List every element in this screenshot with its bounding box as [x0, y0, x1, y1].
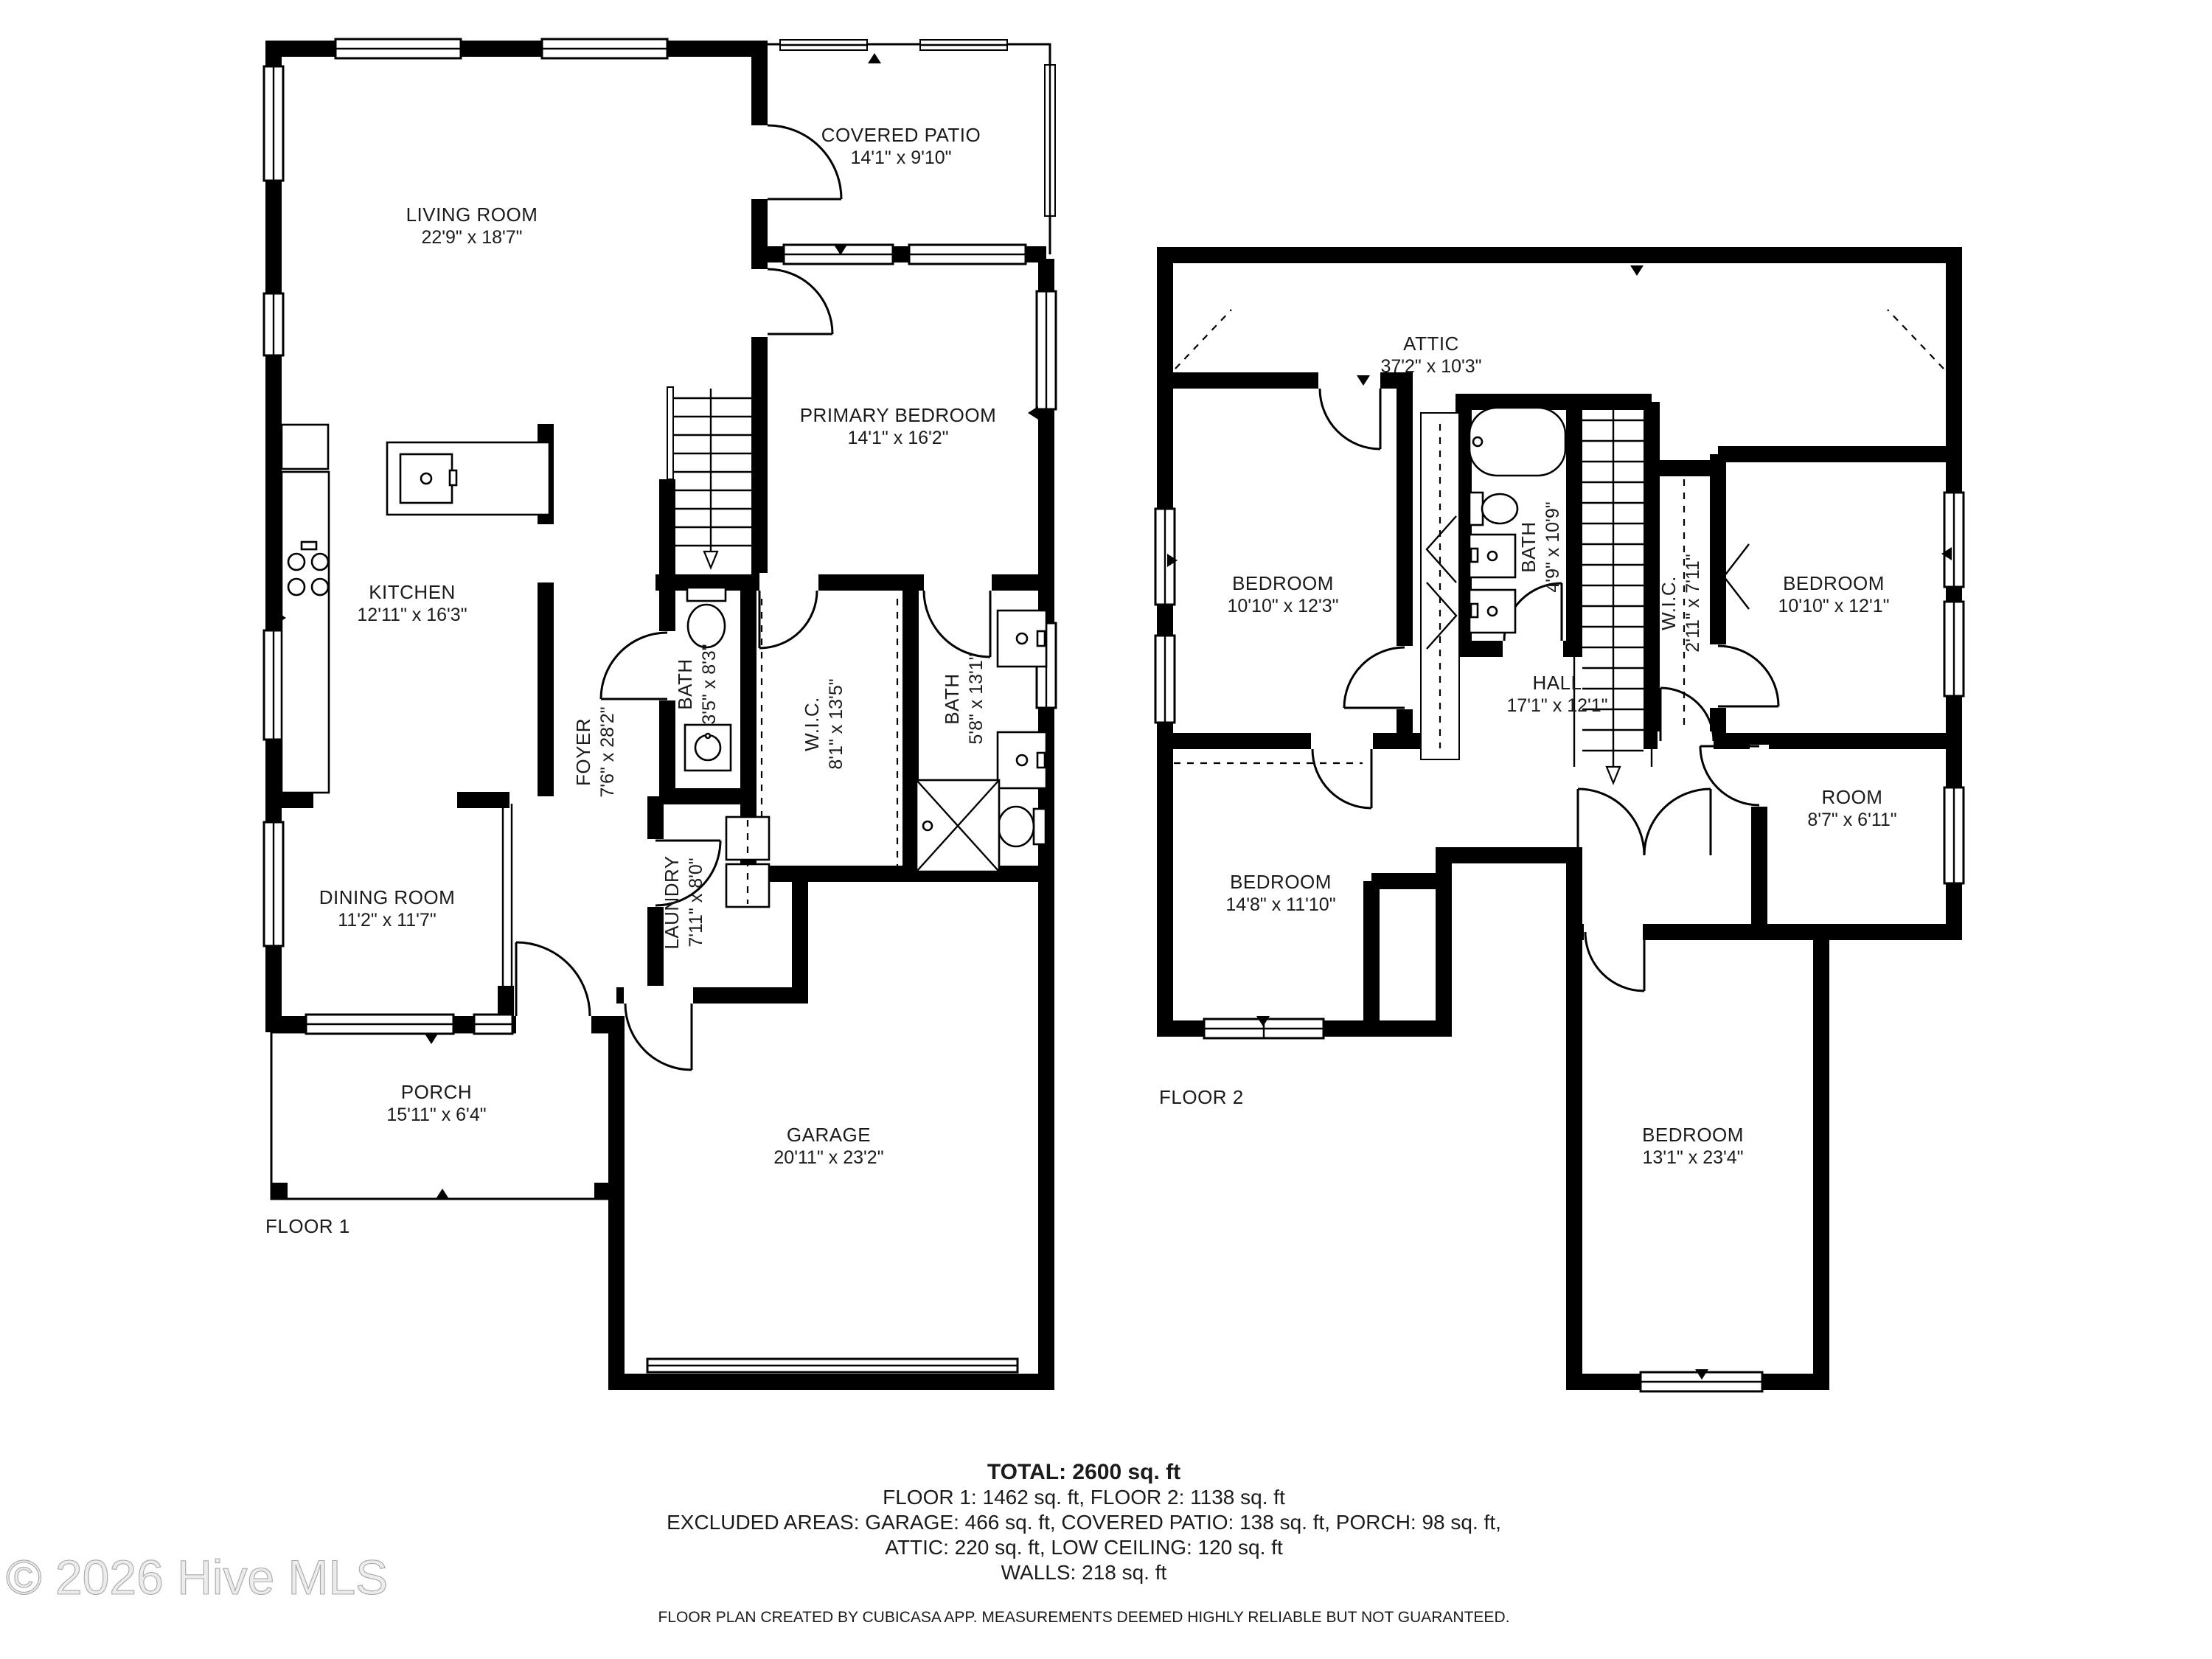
room-label-primary: PRIMARY BEDROOM [800, 404, 997, 426]
window [474, 1015, 512, 1034]
room-label-wic1: W.I.C. [801, 697, 823, 751]
stairs-down-arrow [1607, 767, 1620, 783]
floor1-labels: LIVING ROOM 22'9" x 18'7" COVERED PATIO … [265, 124, 996, 1237]
room-dims-hall: 17'1" x 12'1" [1506, 695, 1607, 716]
window [909, 245, 1026, 264]
laundry-appliances [726, 817, 769, 907]
front-door-swing [516, 942, 590, 1016]
room-label-wic2: W.I.C. [1658, 576, 1680, 630]
summary-excluded1: EXCLUDED AREAS: GARAGE: 466 sq. ft, COVE… [667, 1511, 1501, 1534]
toilet-tank [687, 588, 726, 601]
window [1944, 493, 1964, 587]
vanity-sink-icon [1470, 590, 1515, 633]
attic-door-swing [1320, 389, 1380, 449]
dining-cased-opening [503, 804, 512, 986]
floor2-windows [1155, 493, 1964, 1391]
room-dims-bath-f2: 4'9" x 10'9" [1543, 501, 1563, 592]
window [264, 66, 283, 181]
floor2-title: FLOOR 2 [1159, 1086, 1244, 1108]
room-label-garage: GARAGE [787, 1124, 871, 1146]
room-dims-primary: 14'1" x 16'2" [847, 428, 948, 448]
vanity-sink-icon [998, 732, 1046, 788]
window [1037, 291, 1056, 409]
room-label-patio: COVERED PATIO [821, 124, 981, 146]
bath2-door-swing [924, 591, 990, 657]
room-label-laundry: LAUNDRY [661, 855, 683, 949]
room-label-bedroom-mid: BEDROOM [1230, 871, 1332, 893]
summary-total: TOTAL: 2600 sq. ft [987, 1460, 1180, 1484]
kitchen-counter [282, 472, 329, 793]
window [542, 39, 667, 58]
room-label-bath2: BATH [941, 673, 963, 724]
summary-excluded2: ATTIC: 220 sq. ft, LOW CEILING: 120 sq. … [885, 1536, 1283, 1559]
window [264, 293, 283, 355]
window [1155, 636, 1175, 723]
shower-icon [917, 780, 999, 872]
toilet-icon [998, 807, 1046, 846]
summary-walls: WALLS: 218 sq. ft [1001, 1561, 1167, 1584]
room-label-bath-f2: BATH [1517, 521, 1540, 572]
room-dims-kitchen: 12'11" x 16'3" [357, 605, 467, 625]
floorplan-canvas: LIVING ROOM 22'9" x 18'7" COVERED PATIO … [0, 0, 2212, 1659]
bath1-door-swing [601, 633, 667, 699]
window [306, 1015, 453, 1034]
room-label-bedroom-left: BEDROOM [1232, 572, 1334, 594]
room-dims-patio: 14'1" x 9'10" [850, 147, 951, 168]
room-label-bath1: BATH [674, 658, 696, 709]
bedroom-mid-door-swing [1312, 749, 1371, 808]
room-dims-bedroom-bottom: 13'1" x 23'4" [1642, 1147, 1743, 1168]
summary-disclaimer: FLOOR PLAN CREATED BY CUBICASA APP. MEAS… [658, 1609, 1510, 1626]
room-dims-porch: 15'11" x 6'4" [386, 1105, 486, 1125]
floor2-stairs [1574, 410, 1652, 783]
summary-floors: FLOOR 1: 1462 sq. ft, FLOOR 2: 1138 sq. … [883, 1486, 1285, 1509]
patio-window [780, 40, 867, 50]
window [1944, 787, 1964, 883]
room-dims-bath1: 3'5" x 8'3" [699, 644, 720, 724]
bathtub-icon [1470, 408, 1565, 476]
room-dims-garage: 20'11" x 23'2" [773, 1147, 883, 1168]
room-label-living: LIVING ROOM [406, 204, 538, 226]
vanity-sink-icon [1470, 535, 1515, 577]
wic-door-swing [759, 591, 817, 648]
room-label-bedroom-bottom: BEDROOM [1642, 1124, 1744, 1146]
room-dims-bedroom-left: 10'10" x 12'3" [1227, 596, 1338, 616]
room-dims-attic: 37'2" x 10'3" [1380, 356, 1481, 377]
room-label-kitchen: KITCHEN [369, 581, 456, 603]
floor1-stairs [667, 387, 751, 568]
garage-entry-door-swing [625, 1004, 692, 1070]
refrigerator [282, 425, 328, 469]
attic-slope-lines [1175, 310, 1944, 369]
patio-window [1045, 65, 1055, 216]
room-dims-foyer: 7'6" x 28'2" [597, 706, 618, 797]
room-dims-dining: 11'2" x 11'7" [338, 910, 436, 931]
room-label-bedroom-right: BEDROOM [1783, 572, 1885, 594]
porch-post [271, 1183, 288, 1199]
room-label-dining: DINING ROOM [319, 886, 456, 908]
room-dims-laundry: 7'11" x 8'0" [686, 858, 706, 947]
room-label-porch: PORCH [401, 1081, 472, 1103]
floor1-walls [274, 41, 1054, 1382]
room-dims-bath2: 5'8" x 13'1" [966, 653, 987, 744]
room-dims-living: 22'9" x 18'7" [421, 227, 522, 248]
window [264, 630, 283, 740]
room-label-room: ROOM [1822, 786, 1883, 808]
room-dims-bedroom-mid: 14'8" x 11'10" [1225, 894, 1335, 915]
mls-watermark: © 2026 Hive MLS [6, 1550, 388, 1604]
island-sink-icon [400, 454, 456, 503]
toilet-icon [688, 605, 725, 647]
primary-bedroom-door-swing [768, 269, 832, 334]
stairs-down-arrow [704, 552, 717, 568]
summary-block: TOTAL: 2600 sq. ft FLOOR 1: 1462 sq. ft,… [658, 1460, 1510, 1626]
room-dims-room: 8'7" x 6'11" [1807, 810, 1896, 830]
room-dims-wic2: 2'11" x 7'11" [1683, 554, 1703, 652]
room-label-foyer: FOYER [572, 718, 594, 786]
vanity-sink-icon [998, 611, 1046, 667]
sink-icon [685, 725, 731, 771]
room-dims-wic1: 8'1" x 13'5" [826, 678, 846, 769]
floor2-plan: ATTIC 37'2" x 10'3" BEDROOM 10'10" x 12'… [1155, 255, 1964, 1391]
floor1-title: FLOOR 1 [265, 1215, 350, 1237]
hall-double-door-swing [1578, 789, 1711, 855]
window [264, 822, 283, 946]
patio-window [920, 40, 1007, 50]
room-dims-bedroom-right: 10'10" x 12'1" [1778, 596, 1889, 616]
window [1944, 602, 1964, 696]
low-ceiling-chevron [1724, 544, 1749, 609]
room-label-attic: ATTIC [1403, 333, 1459, 355]
window [335, 39, 461, 58]
floor1-plan: LIVING ROOM 22'9" x 18'7" COVERED PATIO … [264, 39, 1056, 1387]
room-label-hall: HALL [1532, 672, 1582, 694]
toilet-icon [1470, 493, 1517, 525]
